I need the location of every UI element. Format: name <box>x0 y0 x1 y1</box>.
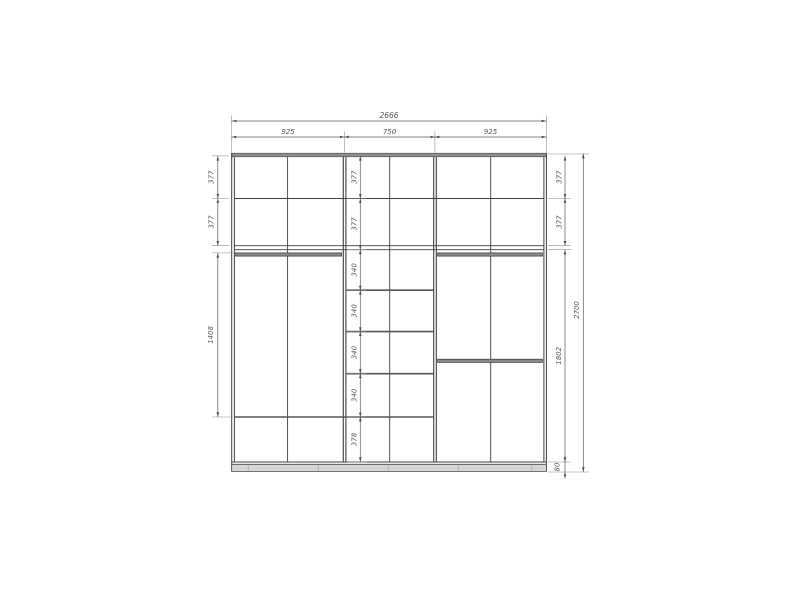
cabinet-structure <box>232 153 547 471</box>
dim-label-mid-340b: 340 <box>350 304 358 318</box>
dim-label-total-height: 2700 <box>573 301 581 319</box>
partition-left <box>343 157 346 462</box>
dim-label-right-1802: 1802 <box>555 346 563 364</box>
right-side-panel <box>544 154 547 472</box>
dim-label-mid-377b: 377 <box>350 217 358 231</box>
partition-right <box>434 157 437 462</box>
dim-label-left-377a: 377 <box>208 170 216 184</box>
top-panel <box>232 153 547 157</box>
plinth <box>232 464 547 471</box>
hanging-rod-right <box>438 253 543 256</box>
dim-label-mid-340a: 340 <box>350 263 358 277</box>
dimension-arrows <box>217 120 585 477</box>
dim-label-right-80: 80 <box>554 462 562 471</box>
dim-label-section-middle: 750 <box>383 128 397 136</box>
thick-shelf-right <box>438 359 543 362</box>
dim-label-mid-377a: 377 <box>350 170 358 184</box>
dim-label-mid-340d: 340 <box>350 388 358 402</box>
dim-label-section-right: 925 <box>484 128 498 136</box>
dim-label-right-377a: 377 <box>556 170 564 184</box>
dimension-extension-lines <box>212 116 589 473</box>
drawing-canvas: 2666 925 750 925 377 377 1408 377 377 34… <box>0 0 800 600</box>
dim-label-mid-378: 378 <box>350 432 358 446</box>
shelf-row2-double <box>234 246 544 250</box>
hanging-rod-left <box>236 253 342 256</box>
bottom-panel <box>232 462 547 471</box>
wardrobe-drawing: 2666 925 750 925 377 377 1408 377 377 34… <box>0 0 800 600</box>
dim-label-left-377b: 377 <box>208 215 216 229</box>
dim-label-total-width: 2666 <box>379 111 398 120</box>
left-side-panel <box>232 154 235 472</box>
dim-label-mid-340c: 340 <box>350 345 358 359</box>
dim-label-right-377b: 377 <box>556 215 564 229</box>
dim-label-section-left: 925 <box>281 128 295 136</box>
dimension-lines <box>218 121 584 479</box>
dim-label-left-1408: 1408 <box>207 326 215 344</box>
